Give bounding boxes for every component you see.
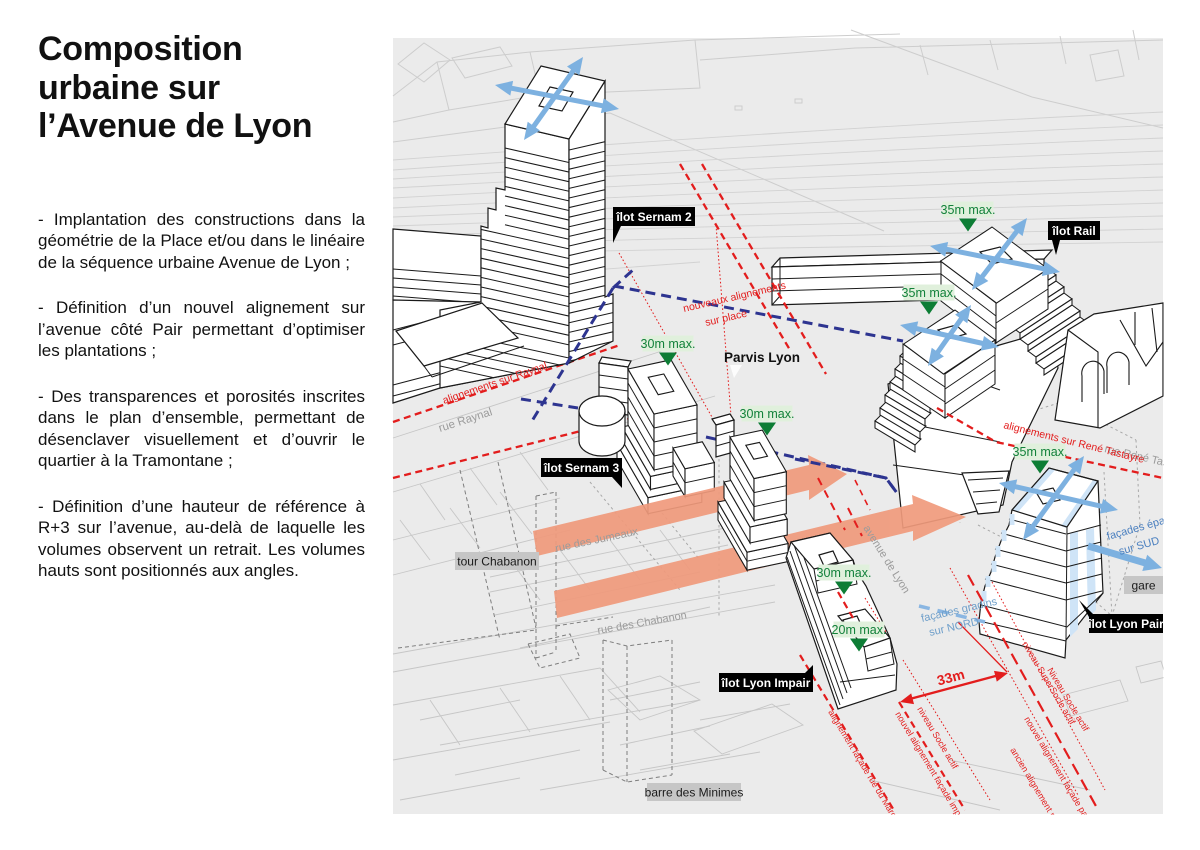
svg-text:Parvis Lyon: Parvis Lyon (724, 350, 800, 365)
svg-text:30m max.: 30m max. (740, 407, 795, 421)
svg-text:35m max.: 35m max. (941, 203, 996, 217)
svg-text:gare: gare (1131, 579, 1155, 593)
svg-text:35m max.: 35m max. (1013, 445, 1068, 459)
svg-text:35m max.: 35m max. (902, 286, 957, 300)
svg-text:îlot Sernam 2: îlot Sernam 2 (615, 210, 692, 224)
svg-text:îlot Sernam 3: îlot Sernam 3 (543, 461, 620, 475)
svg-text:tour Chabanon: tour Chabanon (457, 555, 536, 569)
svg-text:îlot Rail: îlot Rail (1051, 224, 1095, 238)
svg-text:barre des Minimes: barre des Minimes (645, 786, 744, 800)
svg-text:30m max.: 30m max. (641, 337, 696, 351)
svg-text:îlot Lyon Impair: îlot Lyon Impair (721, 676, 811, 690)
svg-text:20m max.: 20m max. (832, 623, 887, 637)
svg-text:îlot Lyon Pair: îlot Lyon Pair (1087, 617, 1164, 631)
svg-text:30m max.: 30m max. (817, 566, 872, 580)
